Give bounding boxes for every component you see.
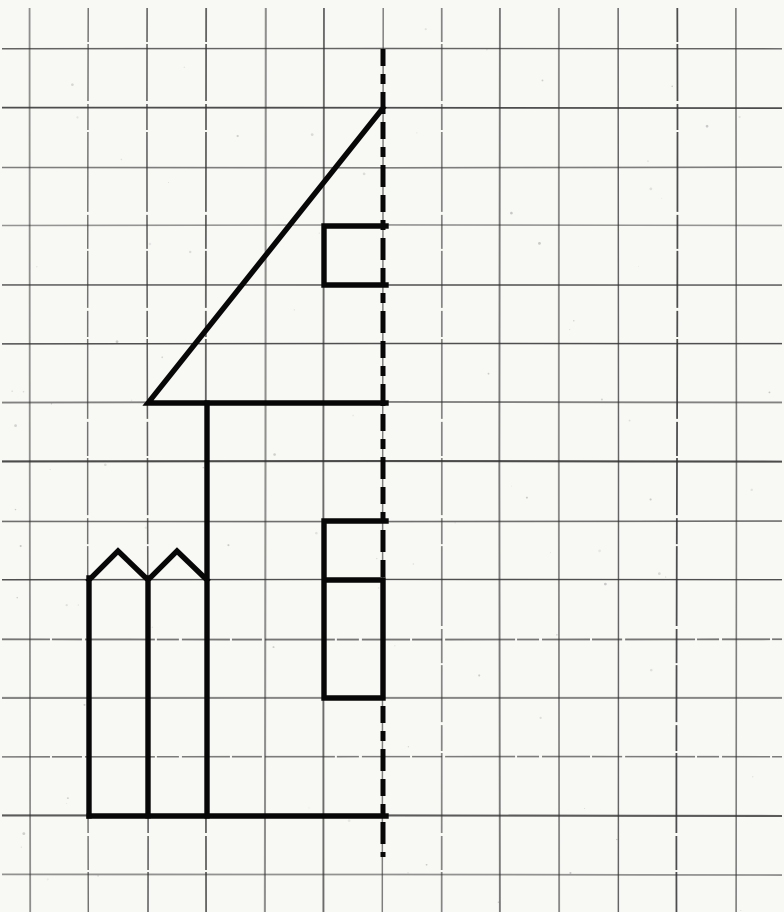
worksheet-page [0, 0, 784, 912]
graph-paper-canvas [0, 0, 784, 912]
paper-background [0, 0, 784, 912]
